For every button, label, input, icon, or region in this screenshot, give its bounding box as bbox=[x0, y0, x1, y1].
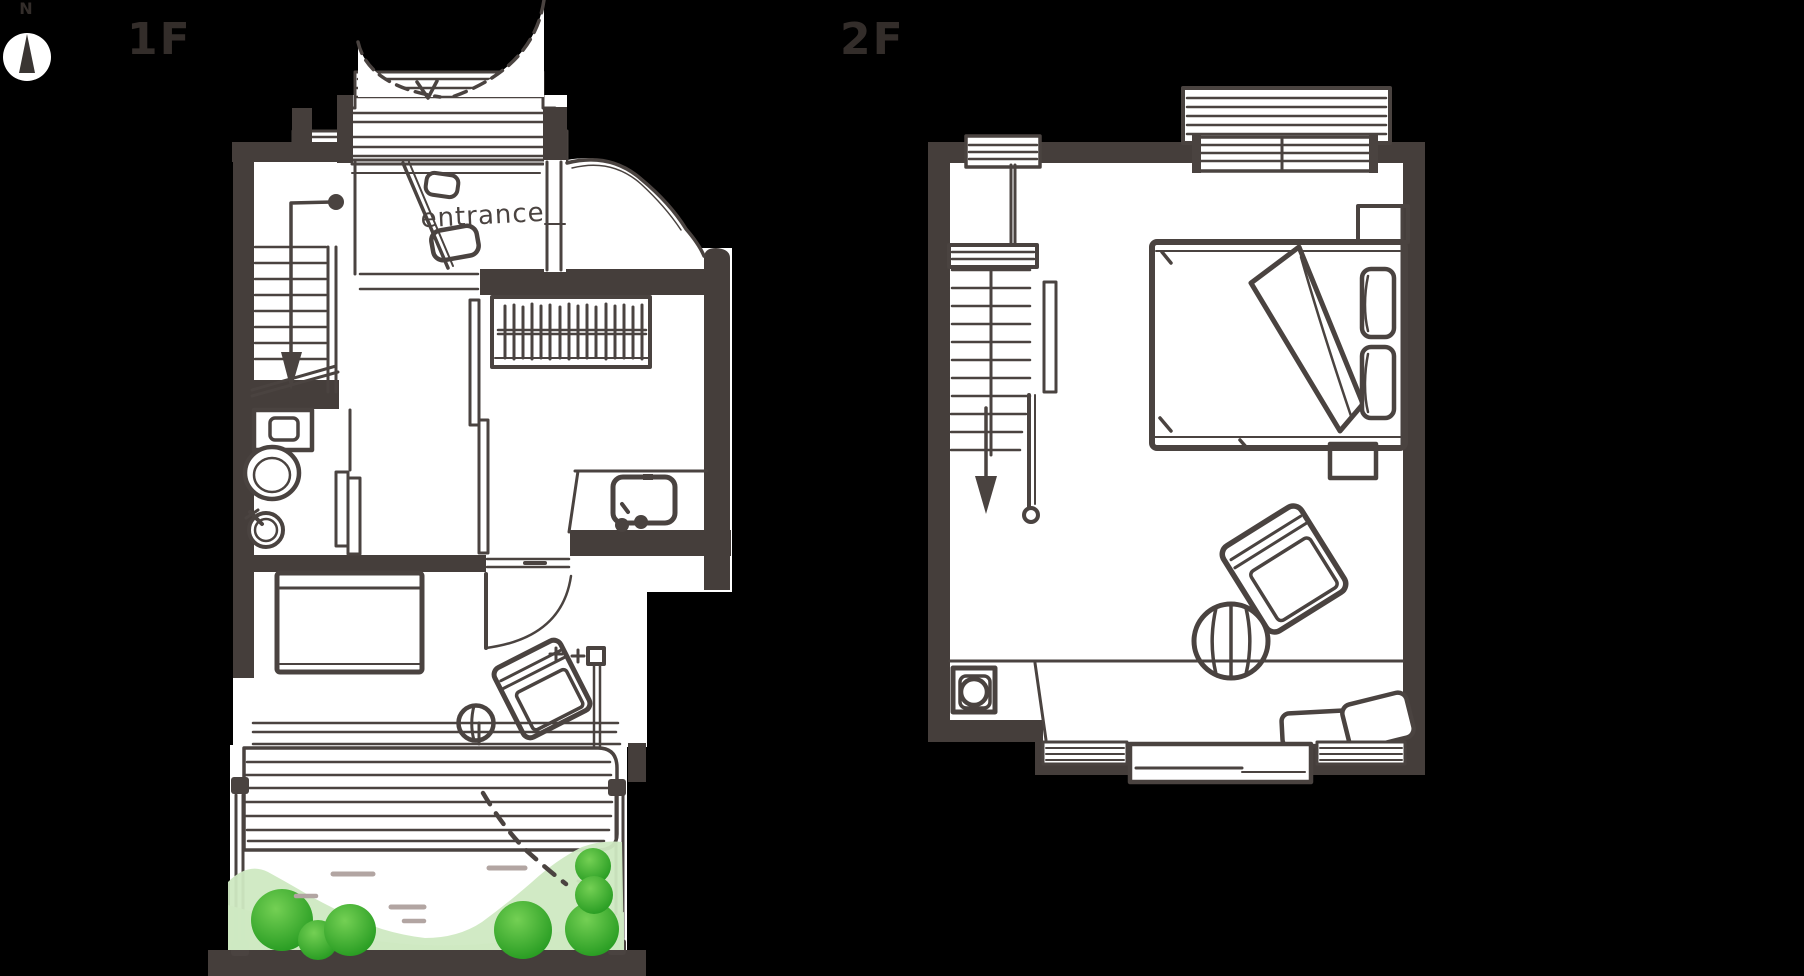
entrance-side-window bbox=[544, 160, 566, 272]
bottom-window-left bbox=[1043, 742, 1127, 764]
bottom-window-right bbox=[1317, 742, 1405, 764]
washer-appliance bbox=[953, 668, 995, 712]
floor-1-label: 1F bbox=[127, 14, 192, 65]
round-stool bbox=[1194, 604, 1268, 678]
floor-1-plan: 1F bbox=[127, 0, 732, 976]
top-window-large bbox=[1183, 88, 1390, 173]
floor-2-plan: 2F bbox=[840, 14, 1425, 782]
stair-start-dot bbox=[328, 194, 344, 210]
stair-knee-wall bbox=[1044, 282, 1056, 392]
double-bed bbox=[1152, 206, 1408, 478]
floor-2-label: 2F bbox=[840, 14, 905, 65]
closet-with-hangers bbox=[492, 297, 650, 367]
compass-rose: N bbox=[3, 0, 51, 81]
toilet-sliding-door bbox=[336, 472, 360, 554]
floorplan-drawing: N 1F bbox=[0, 0, 1804, 976]
bottom-sliding-door bbox=[1130, 744, 1311, 782]
corner-hand-basin bbox=[246, 510, 283, 547]
top-window-small bbox=[966, 136, 1040, 167]
floorplan-canvas: N 1F bbox=[0, 0, 1804, 976]
low-table bbox=[277, 573, 422, 672]
compass-north-letter: N bbox=[19, 0, 34, 18]
